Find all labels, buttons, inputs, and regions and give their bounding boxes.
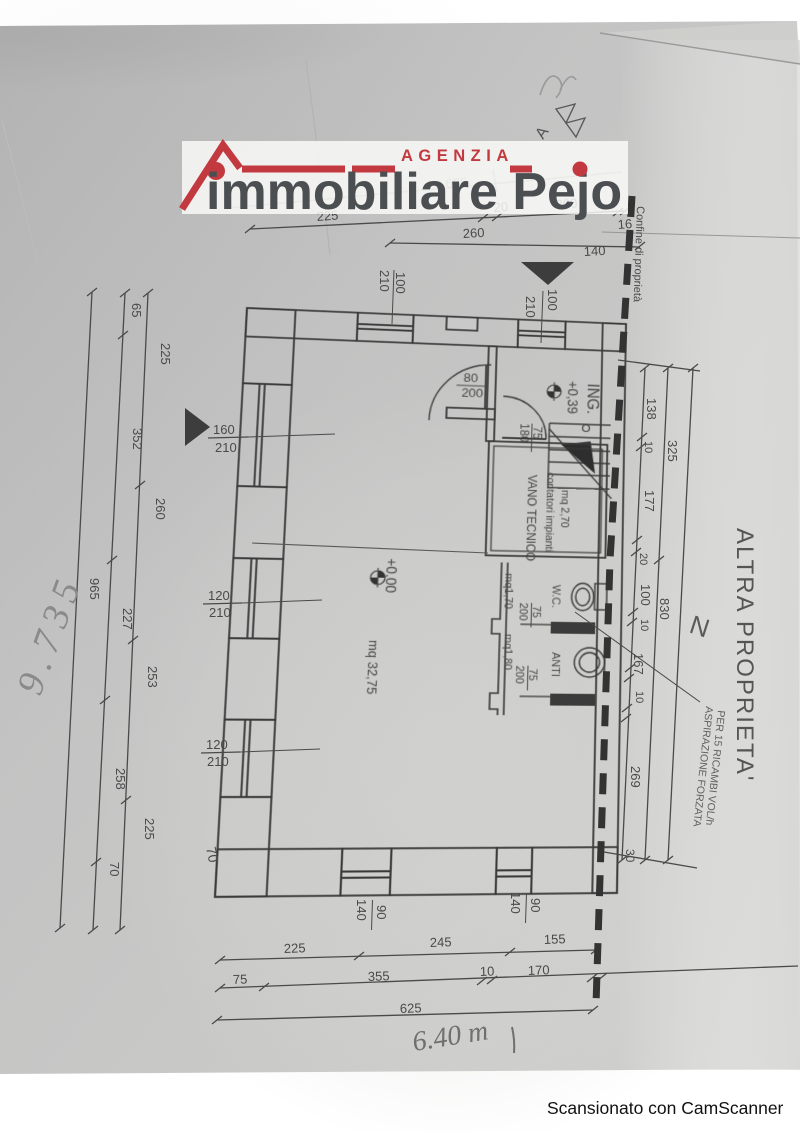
svg-text:immobiliare Pejo: immobiliare Pejo: [206, 163, 622, 221]
